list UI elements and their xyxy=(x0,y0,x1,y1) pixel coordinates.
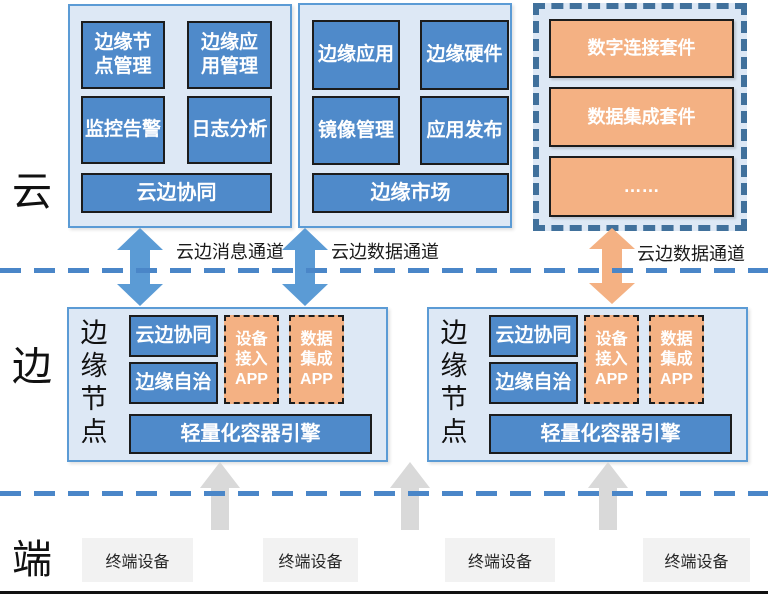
edge-module-cloud-edge-collab: 云边协同 xyxy=(489,315,578,357)
channel-label-data: 云边数据通道 xyxy=(331,241,439,263)
cloud-edge-management-panel: 边缘节 点管理 边缘应 用管理 监控告警 日志分析 云边协同 xyxy=(68,4,292,228)
module-edge-market: 边缘市场 xyxy=(312,173,509,213)
cloud-edge-divider xyxy=(0,268,768,273)
terminal-device-box: 终端设备 xyxy=(82,538,193,582)
device-layer-label: 端 xyxy=(8,538,56,582)
terminal-device-box: 终端设备 xyxy=(643,538,750,582)
edge-node-title: 边 缘 节 点 xyxy=(79,317,109,449)
cloud-suites-panel: 数字连接套件 数据集成套件 …… xyxy=(533,3,747,231)
cloud-edge-message-channel-arrow-icon xyxy=(116,228,164,306)
edge-device-divider xyxy=(0,491,768,496)
edge-app-device-access: 设备 接入 APP xyxy=(224,315,279,404)
edge-layer-label: 边 xyxy=(8,345,56,389)
module-edge-app-management: 边缘应 用管理 xyxy=(187,21,272,89)
edge-app-data-integration: 数据 集成 APP xyxy=(649,315,704,404)
channel-label-message: 云边消息通道 xyxy=(176,241,284,263)
module-app-release: 应用发布 xyxy=(420,96,509,165)
terminal-device-box: 终端设备 xyxy=(263,538,358,582)
bottom-border-line xyxy=(0,591,768,594)
uplink-arrow-icon xyxy=(588,462,628,530)
uplink-arrow-icon xyxy=(200,462,240,530)
channel-label-suite-data: 云边数据通道 xyxy=(637,243,745,265)
cloud-edge-data-channel-arrow-icon xyxy=(281,228,329,306)
module-edge-node-management: 边缘节 点管理 xyxy=(81,21,165,89)
edge-app-data-integration: 数据 集成 APP xyxy=(289,315,344,404)
edge-module-edge-autonomy: 边缘自治 xyxy=(489,362,578,404)
edge-node-panel-left: 边 缘 节 点 云边协同 边缘自治 设备 接入 APP 数据 集成 APP 轻量… xyxy=(67,307,388,462)
edge-module-cloud-edge-collab: 云边协同 xyxy=(129,315,218,357)
cloud-edge-market-panel: 边缘应用 边缘硬件 镜像管理 应用发布 边缘市场 xyxy=(298,3,512,228)
terminal-device-box: 终端设备 xyxy=(445,538,555,582)
edge-app-device-access: 设备 接入 APP xyxy=(584,315,639,404)
edge-container-engine: 轻量化容器引擎 xyxy=(489,414,732,454)
edge-node-title: 边 缘 节 点 xyxy=(439,317,469,449)
suite-data-integration: 数据集成套件 xyxy=(549,87,734,147)
cloud-edge-suite-data-channel-arrow-icon xyxy=(588,228,636,304)
module-monitor-alarm: 监控告警 xyxy=(81,96,165,164)
module-log-analysis: 日志分析 xyxy=(187,96,272,164)
suite-ellipsis: …… xyxy=(549,156,734,217)
module-cloud-edge-collaboration: 云边协同 xyxy=(81,173,272,213)
edge-node-panel-right: 边 缘 节 点 云边协同 边缘自治 设备 接入 APP 数据 集成 APP 轻量… xyxy=(427,307,748,462)
edge-module-edge-autonomy: 边缘自治 xyxy=(129,362,218,404)
module-edge-hardware: 边缘硬件 xyxy=(420,20,509,90)
module-edge-app: 边缘应用 xyxy=(312,20,400,90)
suite-digital-connect: 数字连接套件 xyxy=(549,19,734,78)
cloud-edge-architecture-diagram: 云 边 端 边缘节 点管理 边缘应 用管理 监控告警 日志分析 云边协同 边缘应… xyxy=(0,0,768,595)
uplink-arrow-icon xyxy=(390,462,430,530)
cloud-layer-label: 云 xyxy=(8,170,56,214)
edge-container-engine: 轻量化容器引擎 xyxy=(129,414,372,454)
module-image-management: 镜像管理 xyxy=(312,96,400,165)
